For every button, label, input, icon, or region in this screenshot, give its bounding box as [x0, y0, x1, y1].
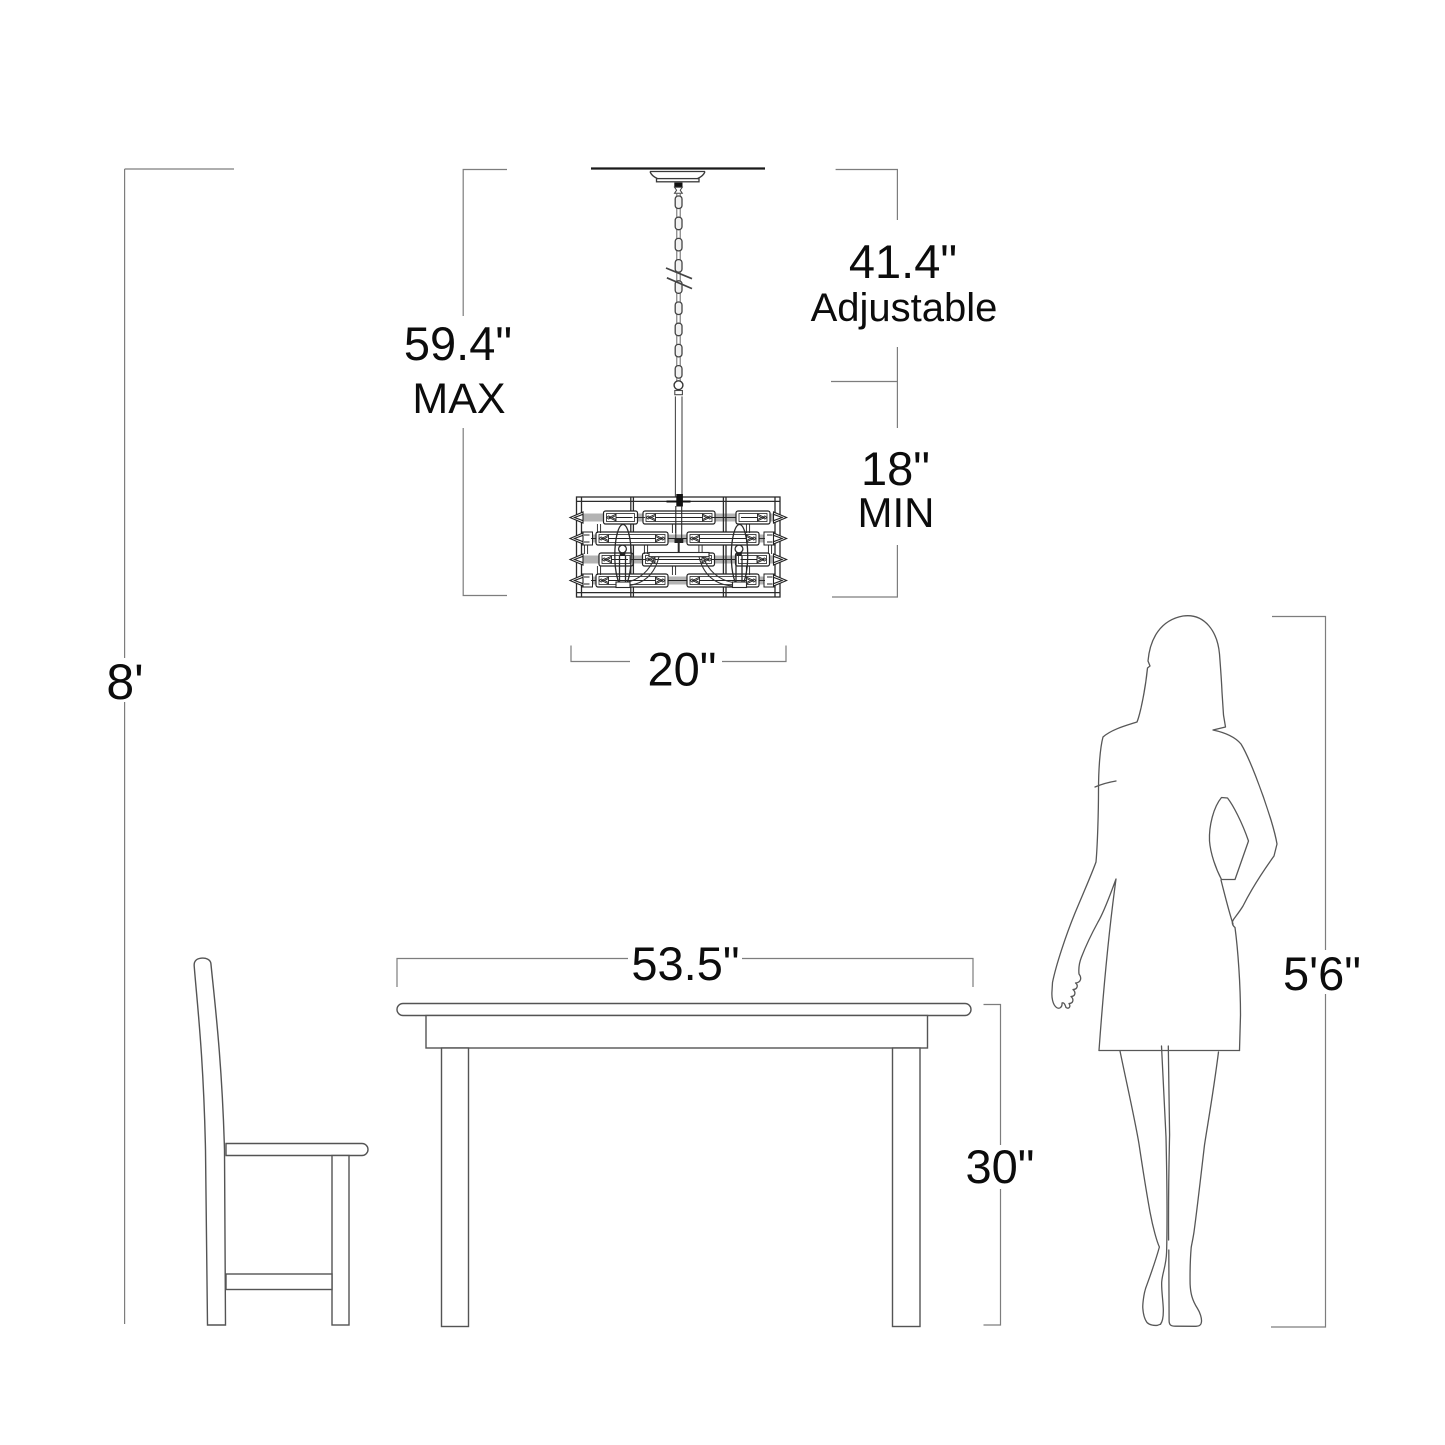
svg-text:59.4": 59.4"	[404, 317, 512, 370]
svg-text:8': 8'	[106, 654, 143, 710]
svg-text:5'6": 5'6"	[1283, 947, 1361, 1000]
svg-text:18": 18"	[861, 442, 930, 495]
svg-text:MAX: MAX	[412, 375, 505, 423]
svg-text:20": 20"	[648, 643, 717, 696]
svg-text:Adjustable: Adjustable	[811, 286, 998, 330]
svg-text:41.4": 41.4"	[849, 235, 957, 288]
svg-text:MIN: MIN	[858, 489, 935, 536]
svg-text:53.5": 53.5"	[631, 937, 739, 990]
svg-text:30": 30"	[966, 1140, 1035, 1193]
